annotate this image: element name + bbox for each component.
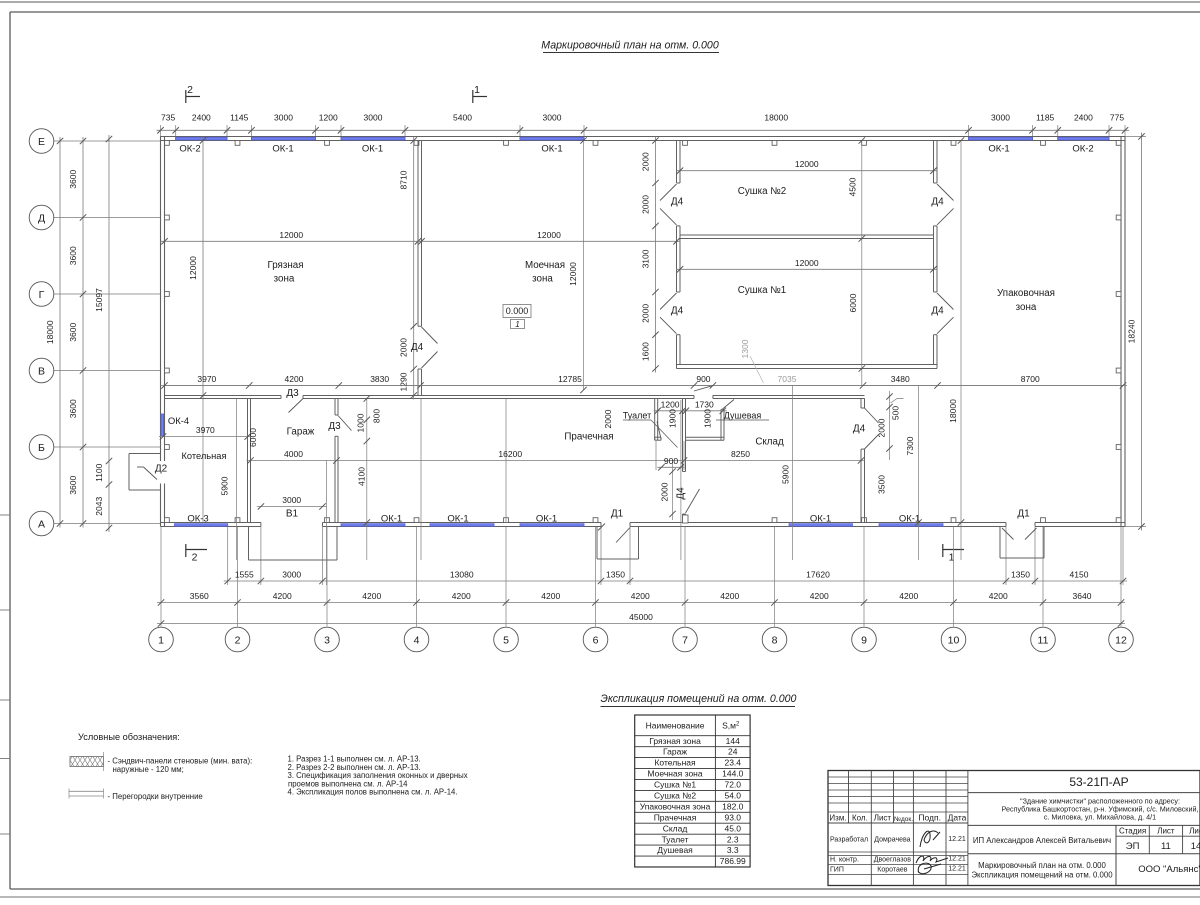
svg-text:54.0: 54.0 [724,791,741,801]
svg-text:Котельная: Котельная [181,451,226,461]
svg-text:3.3: 3.3 [727,845,739,855]
svg-text:Д3: Д3 [328,421,341,432]
svg-text:10: 10 [948,635,960,647]
svg-text:Д4: Д4 [853,424,866,435]
svg-text:12000: 12000 [568,262,578,286]
svg-text:ОК-3: ОК-3 [187,514,208,525]
svg-text:В1: В1 [286,509,299,520]
svg-text:Гараж: Гараж [287,427,315,438]
svg-text:23.4: 23.4 [724,758,741,768]
svg-text:2000: 2000 [399,338,409,357]
svg-text:4200: 4200 [541,591,560,601]
svg-text:4000: 4000 [284,449,303,459]
svg-text:4200: 4200 [273,591,292,601]
svg-text:3600: 3600 [68,476,78,495]
svg-text:6000: 6000 [248,428,258,447]
svg-text:12.21: 12.21 [948,866,966,873]
svg-text:7035: 7035 [778,374,797,384]
svg-text:53-21П-АР: 53-21П-АР [1069,775,1128,789]
svg-text:Туалет: Туалет [623,411,651,421]
svg-text:Г: Г [39,289,45,301]
svg-text:45.0: 45.0 [724,823,741,833]
svg-text:Экспликация помещений на отм.: Экспликация помещений на отм. 0.000 [971,871,1113,880]
svg-text:2000: 2000 [641,304,651,323]
svg-text:2000: 2000 [660,482,670,501]
svg-text:5: 5 [503,635,509,647]
svg-text:Д: Д [38,213,45,225]
svg-text:ОК-1: ОК-1 [988,144,1009,155]
svg-text:Изм.: Изм. [829,814,846,823]
svg-text:5900: 5900 [781,465,791,484]
svg-text:ОК-1: ОК-1 [541,144,562,155]
svg-text:Дата: Дата [948,813,967,823]
svg-text:2000: 2000 [603,409,613,428]
svg-text:13080: 13080 [450,570,474,580]
svg-text:3000: 3000 [543,113,562,123]
svg-text:2000: 2000 [641,152,651,171]
svg-text:зона: зона [274,274,295,285]
svg-text:8710: 8710 [399,170,409,189]
svg-text:с. Миловка, ул. Михайлова, д.: с. Миловка, ул. Михайлова, д. 4/1 [1044,813,1156,822]
svg-text:2.3: 2.3 [727,834,739,844]
svg-text:8: 8 [772,635,778,647]
svg-text:В: В [38,366,45,378]
svg-text:3500: 3500 [877,475,887,494]
svg-text:Моечная: Моечная [525,260,565,271]
svg-text:Д1: Д1 [611,509,624,520]
svg-text:1: 1 [158,635,164,647]
svg-text:6: 6 [593,635,599,647]
svg-text:3600: 3600 [68,246,78,265]
svg-text:ГИП: ГИП [830,867,844,874]
svg-text:Моечная зона: Моечная зона [647,769,702,779]
svg-text:2000: 2000 [877,418,887,437]
svg-text:1350: 1350 [606,570,625,580]
svg-text:2043: 2043 [94,497,104,516]
svg-text:15097: 15097 [94,288,104,312]
svg-text:Д4: Д4 [676,487,687,500]
svg-text:18240: 18240 [1127,319,1137,343]
svg-text:ОК-4: ОК-4 [168,416,189,427]
svg-text:93.0: 93.0 [724,812,741,822]
svg-text:1900: 1900 [668,409,678,428]
svg-text:4200: 4200 [720,591,739,601]
svg-text:1900: 1900 [703,409,713,428]
svg-text:ОК-2: ОК-2 [1072,144,1093,155]
svg-text:12000: 12000 [279,230,303,240]
svg-text:1200: 1200 [319,113,338,123]
svg-text:3970: 3970 [196,425,215,435]
svg-text:Душевая: Душевая [657,845,693,855]
svg-text:№док.: №док. [894,816,913,823]
svg-text:2000: 2000 [641,195,651,214]
svg-text:4200: 4200 [285,374,304,384]
svg-text:ОК-1: ОК-1 [810,514,831,525]
svg-text:12785: 12785 [558,374,582,384]
svg-text:Двоеглазов: Двоеглазов [874,857,911,864]
svg-text:12000: 12000 [795,258,819,268]
svg-text:775: 775 [1110,113,1124,123]
svg-text:4200: 4200 [810,591,829,601]
svg-text:24: 24 [728,747,738,757]
svg-text:4100: 4100 [357,467,367,486]
svg-text:900: 900 [696,374,710,384]
svg-text:18000: 18000 [45,320,55,344]
svg-text:ОК-1: ОК-1 [899,514,920,525]
svg-text:7300: 7300 [905,436,915,455]
svg-text:144: 144 [726,736,740,746]
svg-text:11: 11 [1038,635,1049,647]
svg-text:8250: 8250 [731,449,750,459]
svg-text:Экспликация помещений на отм.: Экспликация помещений на отм. 0.000 [601,693,797,705]
svg-text:12.21: 12.21 [948,856,966,863]
svg-text:0.000: 0.000 [506,306,529,316]
svg-text:1145: 1145 [230,113,249,123]
svg-text:3000: 3000 [282,570,301,580]
svg-text:Упаковочная: Упаковочная [997,288,1055,299]
svg-text:Прачечная: Прачечная [564,432,613,443]
svg-text:3100: 3100 [641,249,651,268]
svg-text:11: 11 [1161,841,1171,852]
svg-text:А: А [38,519,45,531]
svg-text:4: 4 [414,635,420,647]
svg-text:Д4: Д4 [931,306,944,317]
svg-text:Коротаев: Коротаев [877,867,908,874]
svg-text:1600: 1600 [641,342,651,361]
svg-text:144.0: 144.0 [722,769,744,779]
svg-text:Д1: Д1 [1017,509,1030,520]
svg-text:Маркировочный план на отм. 0.0: Маркировочный план на отм. 0.000 [978,861,1106,870]
svg-text:3000: 3000 [274,113,293,123]
svg-text:3640: 3640 [1073,591,1092,601]
svg-text:ОК-1: ОК-1 [447,514,468,525]
svg-text:182.0: 182.0 [722,801,744,811]
svg-text:зона: зона [532,274,553,285]
svg-text:45000: 45000 [629,612,653,622]
svg-text:1200: 1200 [661,400,680,410]
svg-text:2: 2 [235,635,241,647]
svg-text:Лис: Лис [1189,827,1200,836]
svg-text:12000: 12000 [537,230,561,240]
svg-text:7: 7 [682,635,688,647]
svg-text:3000: 3000 [282,495,301,505]
svg-text:1185: 1185 [1036,113,1055,123]
svg-text:ООО "Альянс": ООО "Альянс" [1138,864,1200,875]
svg-text:1350: 1350 [1011,570,1030,580]
svg-text:3: 3 [324,635,330,647]
svg-text:Гараж: Гараж [663,747,687,757]
svg-text:Д4: Д4 [931,197,944,208]
svg-text:Е: Е [38,136,45,148]
svg-text:735: 735 [161,113,175,123]
svg-text:Душевая: Душевая [724,411,762,421]
svg-text:Сушка №1: Сушка №1 [738,285,786,296]
svg-text:2400: 2400 [1074,113,1093,123]
svg-text:Д2: Д2 [155,464,168,475]
svg-text:4500: 4500 [848,177,858,196]
svg-text:12.21: 12.21 [948,836,966,843]
svg-text:800: 800 [372,409,382,423]
svg-text:8700: 8700 [1021,374,1040,384]
svg-text:5900: 5900 [220,476,230,495]
svg-text:12000: 12000 [795,159,819,169]
svg-text:Условные обозначения:: Условные обозначения: [78,732,180,742]
svg-text:4200: 4200 [362,591,381,601]
svg-text:Д4: Д4 [671,306,684,317]
svg-text:5400: 5400 [453,113,472,123]
svg-text:3830: 3830 [370,374,389,384]
svg-text:9: 9 [861,635,867,647]
svg-text:900: 900 [664,456,678,466]
svg-text:14: 14 [1191,841,1200,852]
svg-text:12: 12 [1115,635,1127,647]
svg-text:2400: 2400 [192,113,211,123]
svg-text:2: 2 [187,84,193,96]
svg-text:Сушка №1: Сушка №1 [654,780,696,790]
svg-text:Грязная зона: Грязная зона [649,736,701,746]
svg-text:Туалет: Туалет [662,834,689,844]
svg-text:Грязная: Грязная [267,260,303,271]
svg-text:Котельная: Котельная [654,758,696,768]
svg-text:Подп.: Подп. [918,813,941,823]
svg-text:1300: 1300 [740,339,750,358]
svg-text:ОК-2: ОК-2 [179,144,200,155]
svg-text:1: 1 [474,84,480,96]
svg-text:ЭП: ЭП [1126,841,1140,852]
svg-text:Сушка №2: Сушка №2 [654,791,696,801]
svg-text:1730: 1730 [695,400,714,410]
svg-text:ОК-1: ОК-1 [362,144,383,155]
svg-text:ОК-1: ОК-1 [272,144,293,155]
svg-text:Д4: Д4 [671,197,684,208]
svg-text:3600: 3600 [68,170,78,189]
svg-text:Лист: Лист [1157,827,1175,836]
svg-text:Маркировочный план на отм. 0.0: Маркировочный план на отм. 0.000 [541,40,719,52]
svg-text:18000: 18000 [948,399,958,423]
svg-text:786.99: 786.99 [720,856,746,866]
svg-text:Кол.: Кол. [852,814,868,823]
svg-text:Разработал: Разработал [830,836,868,844]
svg-text:3480: 3480 [891,374,910,384]
svg-text:4. Экспликация полов выполнена: 4. Экспликация полов выполнена см. л. АР… [288,788,458,797]
svg-text:6000: 6000 [848,293,858,312]
svg-text:4200: 4200 [899,591,918,601]
svg-text:Склад: Склад [663,823,688,833]
svg-text:Стадия: Стадия [1119,827,1146,836]
svg-text:3000: 3000 [364,113,383,123]
svg-text:Д4: Д4 [411,342,424,353]
svg-text:4200: 4200 [989,591,1008,601]
svg-text:Сушка №2: Сушка №2 [738,186,786,197]
svg-text:17620: 17620 [806,570,830,580]
svg-text:3560: 3560 [190,591,209,601]
svg-text:16200: 16200 [498,449,522,459]
svg-text:18000: 18000 [764,113,788,123]
svg-text:ИП Александров Алексей Виталье: ИП Александров Алексей Витальевич [973,836,1111,845]
svg-text:2: 2 [192,552,198,564]
svg-text:Упаковочная зона: Упаковочная зона [640,801,711,811]
svg-text:4200: 4200 [452,591,471,601]
svg-text:3000: 3000 [991,113,1010,123]
svg-text:1: 1 [515,320,519,329]
svg-text:3600: 3600 [68,399,78,418]
svg-text:Прачечная: Прачечная [654,812,697,822]
svg-text:Д3: Д3 [286,388,299,399]
svg-text:Лист: Лист [874,814,892,823]
svg-text:- Перегородки внутренние: - Перегородки внутренние [108,792,203,801]
svg-text:500: 500 [891,406,901,420]
svg-text:72.0: 72.0 [724,780,741,790]
svg-text:3970: 3970 [197,374,216,384]
svg-text:1290: 1290 [399,372,409,391]
svg-text:1555: 1555 [235,570,254,580]
svg-text:Б: Б [38,442,45,454]
svg-text:зона: зона [1016,302,1037,313]
svg-text:Склад: Склад [755,437,784,448]
svg-text:4200: 4200 [631,591,650,601]
svg-text:Домрачева: Домрачева [874,837,910,844]
svg-text:Наименование: Наименование [646,721,705,731]
svg-text:ОК-1: ОК-1 [381,514,402,525]
svg-text:наружные - 120 мм;: наружные - 120 мм; [113,765,184,774]
svg-text:3600: 3600 [68,323,78,342]
svg-text:ОК-1: ОК-1 [536,514,557,525]
svg-text:1100: 1100 [94,463,104,482]
svg-text:4150: 4150 [1070,570,1089,580]
svg-text:12000: 12000 [188,256,198,280]
svg-text:Н. контр.: Н. контр. [830,857,859,864]
